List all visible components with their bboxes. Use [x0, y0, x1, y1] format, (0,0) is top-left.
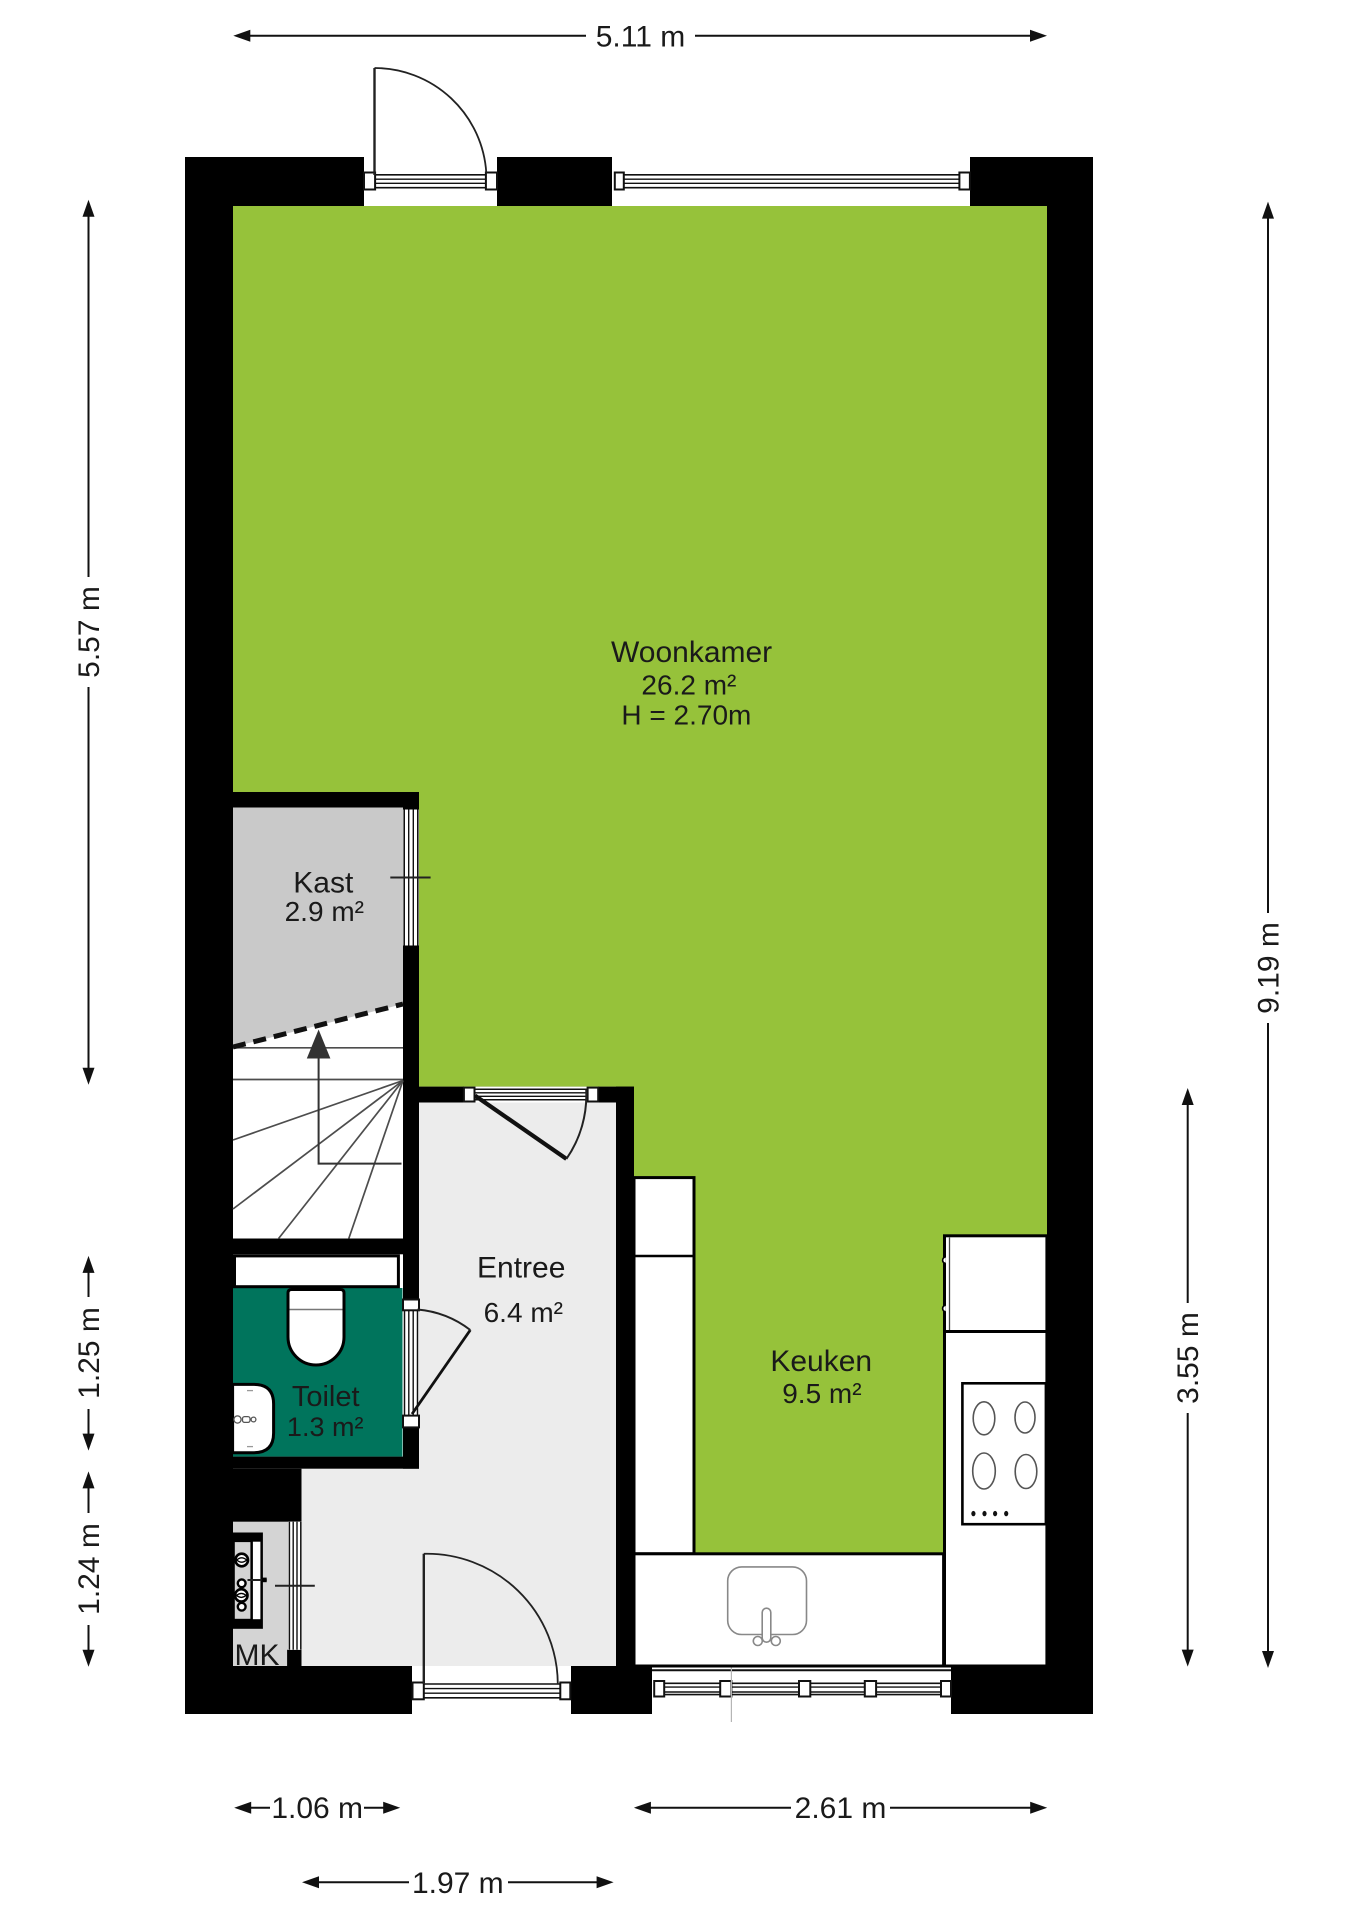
svg-text:Toilet: Toilet	[292, 1381, 360, 1413]
svg-text:1.25 m: 1.25 m	[73, 1307, 106, 1399]
svg-text:5.57 m: 5.57 m	[73, 586, 106, 678]
svg-text:2.61 m: 2.61 m	[795, 1792, 887, 1825]
svg-text:3.55 m: 3.55 m	[1172, 1312, 1205, 1404]
svg-text:1.24 m: 1.24 m	[73, 1523, 106, 1615]
svg-text:Woonkamer: Woonkamer	[611, 636, 772, 669]
svg-text:26.2 m²: 26.2 m²	[641, 670, 736, 701]
svg-text:1.3 m²: 1.3 m²	[287, 1412, 364, 1442]
svg-text:H = 2.70m: H = 2.70m	[621, 700, 751, 731]
svg-text:6.4 m²: 6.4 m²	[484, 1297, 563, 1328]
svg-text:9.19 m: 9.19 m	[1253, 922, 1286, 1014]
svg-text:Keuken: Keuken	[770, 1345, 872, 1378]
svg-text:9.5 m²: 9.5 m²	[782, 1378, 861, 1409]
svg-text:Kast: Kast	[293, 867, 354, 900]
svg-text:5.11 m: 5.11 m	[596, 20, 686, 53]
svg-text:2.9 m²: 2.9 m²	[285, 896, 364, 927]
svg-text:1.06 m: 1.06 m	[271, 1792, 363, 1825]
svg-text:Entree: Entree	[477, 1252, 565, 1285]
svg-text:1.97 m: 1.97 m	[412, 1867, 504, 1900]
svg-text:MK: MK	[235, 1639, 280, 1672]
